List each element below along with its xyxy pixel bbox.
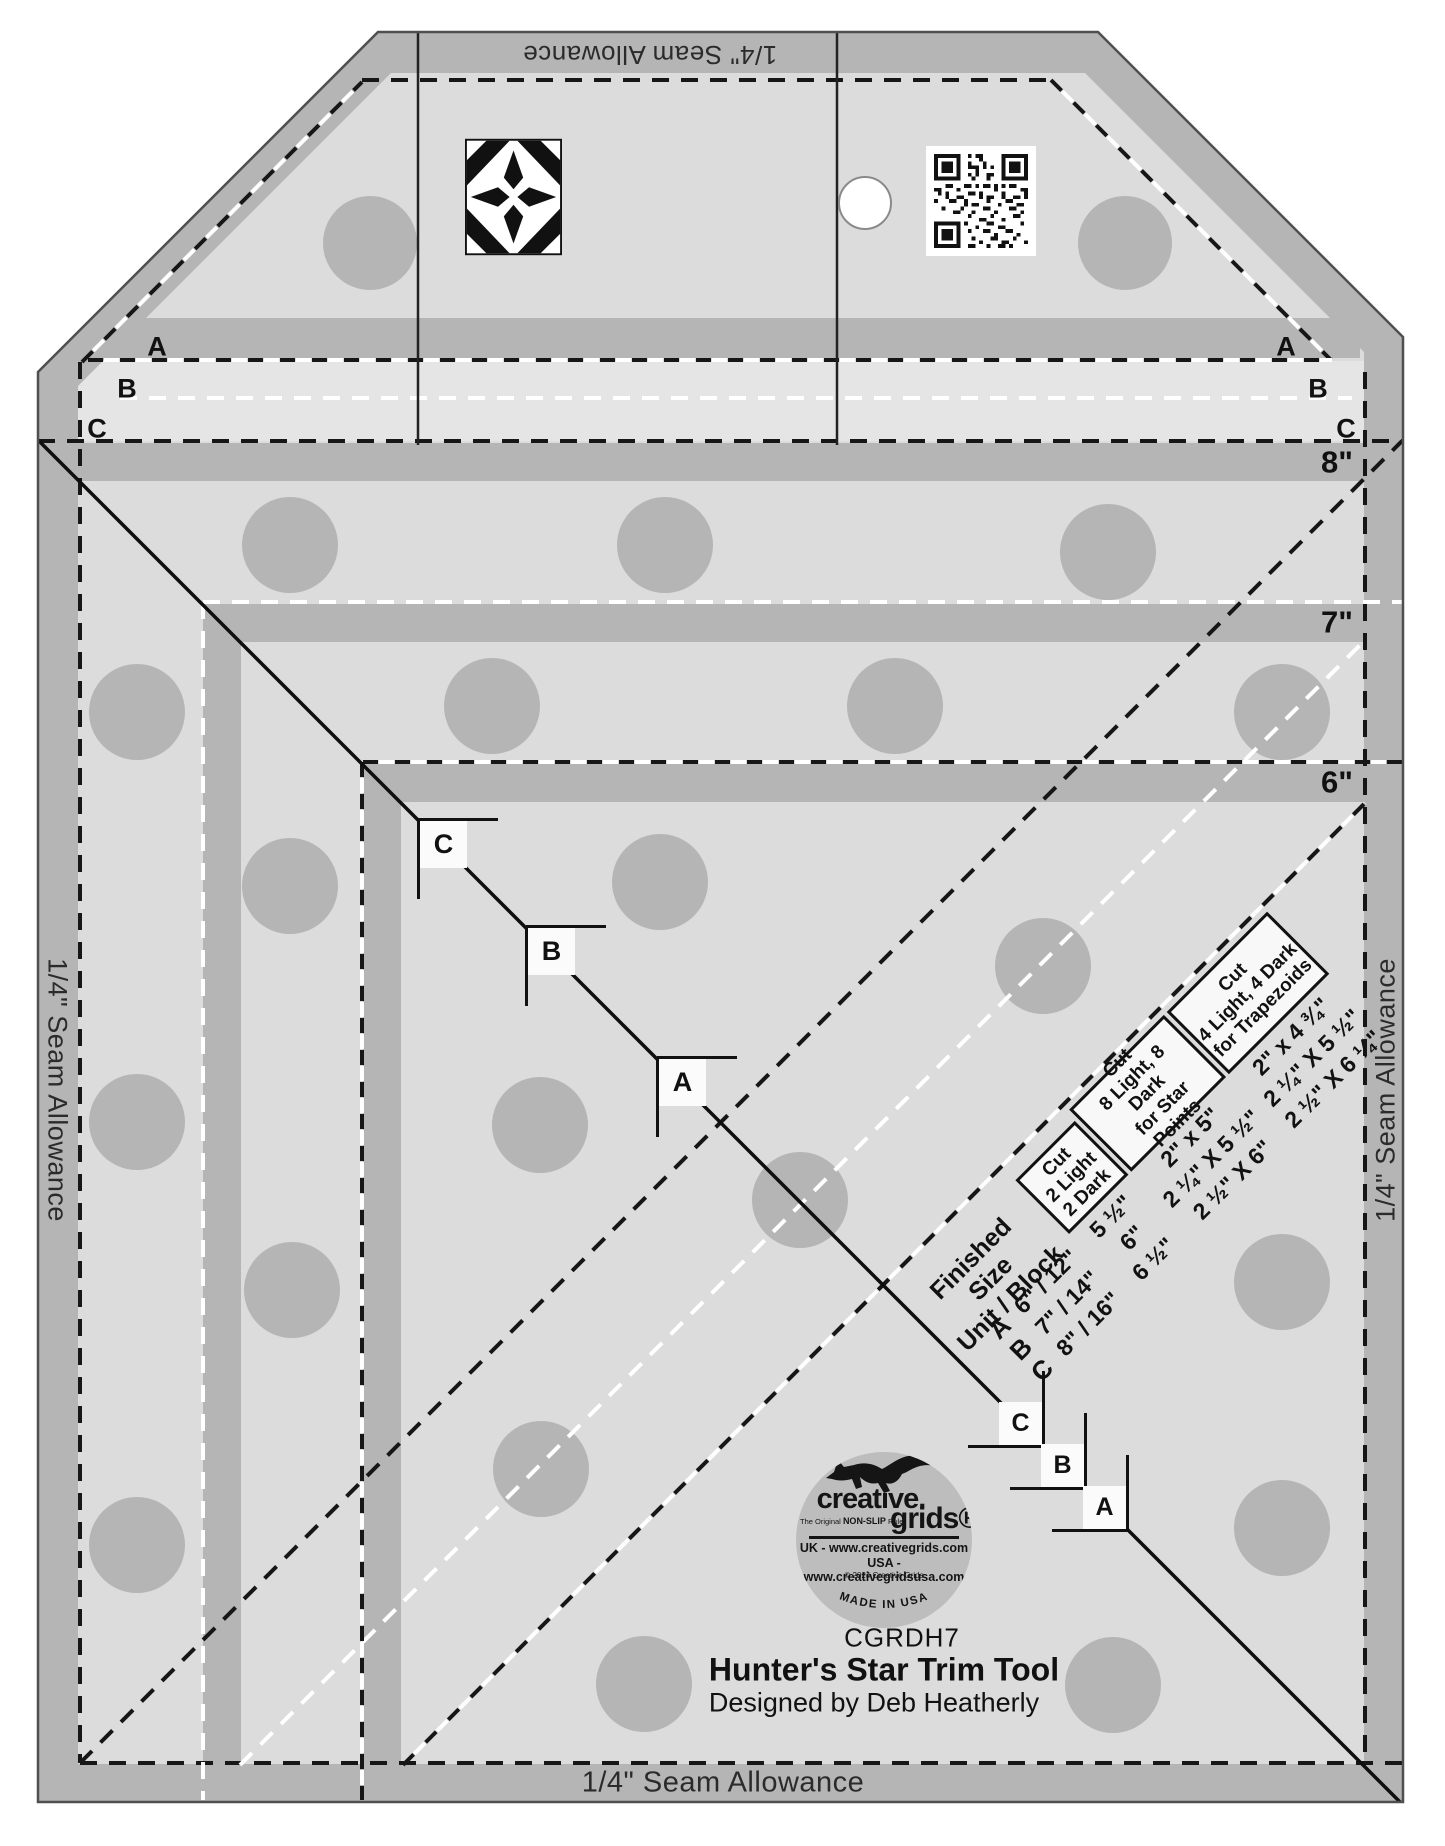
diagonal-letter: B	[1053, 1453, 1071, 1478]
diagonal-box-c-upper: C	[420, 821, 467, 868]
quilt-block-image	[465, 138, 562, 256]
size-label-8in: 8"	[1321, 447, 1353, 478]
product-designer: Designed by Deb Heatherly	[709, 1688, 1039, 1719]
seam-allowance-left: 1/4" Seam Allowance	[44, 958, 71, 1222]
product-sku: CGRDH7	[844, 1623, 960, 1654]
corner-mark	[656, 1057, 659, 1137]
band-6in-horizontal	[363, 764, 1403, 802]
diagonal-box-b-lower: B	[1041, 1444, 1084, 1487]
ruler-geometry	[0, 0, 1445, 1846]
letter-a-left: A	[147, 334, 167, 361]
seam-allowance-top: 1/4" Seam Allowance	[523, 42, 777, 68]
corner-mark	[657, 1056, 737, 1059]
qr-code	[926, 146, 1036, 256]
band-7in-horizontal	[203, 604, 1403, 642]
seam-allowance-right: 1/4" Seam Allowance	[1373, 958, 1400, 1222]
product-title: Hunter's Star Trim Tool	[709, 1652, 1059, 1689]
diagonal-letter: B	[542, 938, 562, 965]
corner-mark	[417, 819, 420, 899]
seam-allowance-bottom: 1/4" Seam Allowance	[582, 1769, 865, 1798]
diagonal-box-b-upper: B	[528, 928, 575, 975]
diagonal-letter: A	[1095, 1495, 1113, 1520]
light-strip	[38, 361, 1403, 441]
letter-a-right: A	[1276, 334, 1296, 361]
size-label-7in: 7"	[1321, 607, 1353, 638]
svg-text:MADE IN USA: MADE IN USA	[838, 1591, 930, 1612]
letter-c-left: C	[87, 416, 107, 443]
band-6in-vertical	[363, 764, 401, 1802]
corner-mark	[525, 926, 528, 1006]
star-point-band	[100, 318, 1360, 358]
hanging-hole	[838, 176, 892, 230]
letter-b-right: B	[1308, 376, 1328, 403]
diagonal-box-a-upper: A	[659, 1059, 706, 1106]
creative-grids-logo: creative. grids® The Original NON-SLIP R…	[796, 1452, 972, 1628]
made-in-usa-arc: MADE IN USA	[796, 1452, 972, 1628]
corner-mark	[526, 925, 606, 928]
ruler-product-image: 1/4" Seam Allowance 1/4" Seam Allowance …	[0, 0, 1445, 1846]
letter-b-left: B	[117, 376, 137, 403]
diagonal-letter: A	[673, 1069, 693, 1096]
corner-mark	[1010, 1487, 1086, 1490]
corner-mark	[968, 1445, 1044, 1448]
corner-mark	[418, 818, 498, 821]
corner-mark	[1084, 1413, 1087, 1489]
corner-mark	[1052, 1529, 1128, 1532]
letter-c-right: C	[1336, 416, 1356, 443]
size-label-6in: 6"	[1321, 767, 1353, 798]
made-in-usa-text: MADE IN USA	[838, 1591, 930, 1612]
diagonal-letter: C	[434, 831, 454, 858]
diagonal-box-a-lower: A	[1083, 1486, 1126, 1529]
corner-mark	[1126, 1455, 1129, 1531]
band-8in	[38, 443, 1403, 481]
band-7in-vertical	[203, 604, 241, 1802]
